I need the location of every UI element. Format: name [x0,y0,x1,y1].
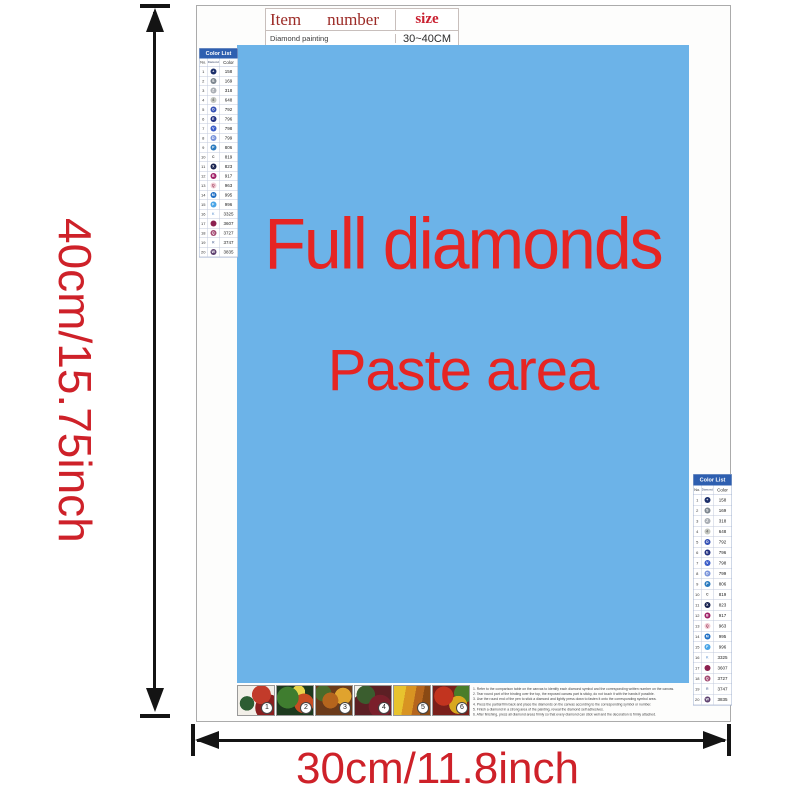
row-number: 18 [200,229,208,238]
row-number: 15 [200,200,208,209]
diamond-symbol-icon: X [210,164,216,170]
paste-area: Full diamonds Paste area [237,45,689,683]
color-list-row: 5 O 792 [694,537,732,548]
diamond-symbol-icon: 4 [704,529,710,535]
diamond-symbol-icon: O [704,539,710,545]
diamond-symbol-cell: Z [208,86,220,95]
dmc-code: 3325 [220,212,238,217]
arrowhead-down-icon [146,688,164,712]
color-list-row: 15 F 996 [200,200,238,210]
diamond-symbol-icon: K [704,655,710,661]
color-list-left: Color List No. Diamond Color 1 + 158 [199,48,238,258]
row-number: 1 [694,495,702,505]
color-list-rows: 1 + 158 2 S 169 [694,495,732,705]
color-list-right: Color List No. Diamond Color 1 + 158 [693,474,732,706]
row-number: 4 [694,527,702,537]
color-list-row: 5 O 792 [200,105,238,115]
diamond-symbol-icon: D [210,135,216,141]
col-color: Color [714,486,732,495]
diamond-symbol-cell: D [208,134,220,143]
color-list-row: 13 Q 963 [694,621,732,632]
arrow-line [197,739,725,742]
diamond-symbol-cell: 4 [702,527,714,537]
diamond-symbol-cell: F [702,642,714,652]
dmc-code: 3727 [714,676,732,681]
diamond-symbol-cell: B [702,611,714,621]
dmc-code: 963 [714,624,732,629]
diamond-symbol-icon: + [704,497,710,503]
diamond-symbol-icon [210,221,216,227]
diamond-symbol-icon: C [704,592,710,598]
dmc-code: 169 [714,508,732,513]
color-list-row: 6 E 796 [694,548,732,559]
color-list-row: 17 3607 [694,663,732,674]
row-number: 7 [694,558,702,568]
diamond-symbol-icon: B [210,173,216,179]
row-number: 14 [200,191,208,200]
diamond-symbol-cell [702,663,714,673]
diamond-symbol-cell: Z [702,516,714,526]
row-number: 17 [694,663,702,673]
color-list-row: 8 D 799 [694,569,732,580]
color-list-title: Color List [200,49,238,59]
dmc-code: 3727 [220,231,238,236]
diamond-symbol-cell: C [208,153,220,162]
diamond-symbol-icon: P [210,145,216,151]
dmc-code: 798 [220,126,238,131]
thumbnail-number-badge: 3 [339,702,351,714]
color-list-row: 19 R 3747 [694,684,732,695]
dmc-code: 823 [714,603,732,608]
diamond-symbol-cell: C [702,590,714,600]
row-number: 10 [694,590,702,600]
row-number: 5 [694,537,702,547]
diamond-symbol-cell: D [702,569,714,579]
color-list-row: 18 Q 3727 [200,229,238,239]
diamond-symbol-icon: V [704,560,710,566]
dmc-code: 796 [714,550,732,555]
diamond-symbol-cell: O [702,537,714,547]
color-list-row: 16 K 3325 [694,653,732,664]
diamond-symbol-cell: 4 [208,96,220,105]
row-number: 6 [694,548,702,558]
diamond-symbol-icon: R [704,686,710,692]
row-number: 2 [694,506,702,516]
diamond-symbol-cell: O [208,105,220,114]
color-list-column-headers: No. Diamond Color [694,486,732,496]
diamond-symbol-icon: O [210,107,216,113]
diamond-symbol-icon: 4 [210,97,216,103]
diamond-symbol-icon: Q [704,676,710,682]
product-name-cell: Diamond painting [266,34,396,43]
row-number: 11 [694,600,702,610]
item-table-data-row: Diamond painting 30~40CM [266,31,458,46]
color-list-row: 20 W 3835 [694,695,732,706]
row-number: 2 [200,77,208,86]
col-diamond: Diamond [702,486,714,495]
dmc-code: 806 [714,582,732,587]
instruction-line: 6. After finishing, press all diamond ar… [473,712,699,717]
color-list-row: 12 B 917 [200,172,238,182]
col-diamond: Diamond [208,59,220,67]
diamond-symbol-cell: K [702,653,714,663]
row-number: 16 [694,653,702,663]
color-list-row: 7 V 798 [200,124,238,134]
diamond-symbol-icon: D [704,571,710,577]
row-number: 1 [200,67,208,76]
thumbnail-number-badge: 1 [261,702,273,714]
item-label: Item [270,10,301,30]
diamond-symbol-cell: K [208,210,220,219]
diamond-symbol-icon: Z [210,88,216,94]
diamond-symbol-cell: E [702,548,714,558]
color-list-row: 8 D 799 [200,134,238,144]
dmc-code: 963 [220,183,238,188]
diamond-symbol-icon: S [210,78,216,84]
dmc-code: 3607 [714,666,732,671]
item-number-header-cell: Item number [266,10,396,30]
dmc-code: 3325 [714,655,732,660]
color-list-row: 1 + 158 [200,67,238,77]
diamond-symbol-cell: F [208,200,220,209]
col-color: Color [220,59,238,67]
diamond-symbol-icon: M [210,192,216,198]
diamond-symbol-cell: P [702,579,714,589]
thumbnail-number-badge: 6 [456,702,468,714]
diamond-symbol-icon: B [704,613,710,619]
color-list-column-headers: No. Diamond Color [200,59,238,68]
diamond-symbol-icon: F [210,202,216,208]
color-list-rows: 1 + 158 2 S 169 [200,67,238,257]
diamond-symbol-cell: X [702,600,714,610]
color-list-row: 2 S 169 [694,506,732,517]
color-list-row: 18 Q 3727 [694,674,732,685]
dmc-code: 996 [220,202,238,207]
diamond-symbol-icon: X [704,602,710,608]
thumbnail: 5 [393,685,431,716]
diamond-symbol-cell: M [208,191,220,200]
col-no: No. [200,59,208,67]
dmc-code: 648 [220,98,238,103]
diamond-symbol-cell: E [208,115,220,124]
row-number: 8 [694,569,702,579]
dmc-code: 995 [714,634,732,639]
row-number: 20 [200,248,208,257]
color-list-row: 11 X 823 [694,600,732,611]
diamond-symbol-cell: W [702,695,714,705]
dmc-code: 798 [714,561,732,566]
diamond-symbol-cell: Q [208,181,220,190]
dmc-code: 3747 [714,687,732,692]
color-list-row: 2 S 169 [200,77,238,87]
diamond-symbol-cell: P [208,143,220,152]
dmc-code: 996 [714,645,732,650]
row-number: 3 [200,86,208,95]
dmc-code: 318 [714,519,732,524]
diamond-symbol-icon: Q [210,230,216,236]
diamond-symbol-cell: S [208,77,220,86]
color-list-row: 3 Z 318 [200,86,238,96]
dmc-code: 3747 [220,240,238,245]
diamond-symbol-icon: Q [704,623,710,629]
dmc-code: 3835 [714,697,732,702]
paste-area-title-line1: Full diamonds [237,203,689,286]
diamond-symbol-icon: W [704,697,710,703]
size-header-cell: size [396,11,458,28]
dmc-code: 823 [220,164,238,169]
thumbnail-number-badge: 5 [417,702,429,714]
diamond-symbol-cell: R [208,238,220,247]
row-number: 18 [694,674,702,684]
diamond-symbol-icon: S [704,508,710,514]
dmc-code: 917 [220,174,238,179]
diamond-symbol-icon: C [210,154,216,160]
color-list-row: 14 M 995 [200,191,238,201]
row-number: 5 [200,105,208,114]
diamond-symbol-cell: W [208,248,220,257]
diamond-symbol-icon: F [704,644,710,650]
diamond-symbol-icon: Z [704,518,710,524]
diamond-symbol-cell: M [702,632,714,642]
arrow-cap-bottom [140,714,170,718]
color-list-row: 16 K 3325 [200,210,238,220]
diamond-symbol-icon: M [704,634,710,640]
color-list-row: 12 B 917 [694,611,732,622]
diamond-symbol-icon [704,665,710,671]
example-thumbnails: 1 2 3 4 5 6 [237,685,470,716]
thumbnail: 3 [315,685,353,716]
row-number: 9 [200,143,208,152]
dmc-code: 796 [220,117,238,122]
instructions: 1. Refer to the comparison table on the … [473,687,699,718]
color-list-row: 4 4 648 [200,96,238,106]
dmc-code: 3835 [220,250,238,255]
thumbnail: 1 [237,685,275,716]
dmc-code: 792 [220,107,238,112]
diamond-symbol-cell: S [702,506,714,516]
row-number: 14 [694,632,702,642]
row-number: 12 [694,611,702,621]
row-number: 13 [694,621,702,631]
diamond-symbol-icon: W [210,249,216,255]
diamond-symbol-cell: R [702,684,714,694]
dmc-code: 169 [220,79,238,84]
thumbnail: 4 [354,685,392,716]
color-list-row: 7 V 798 [694,558,732,569]
dmc-code: 799 [220,136,238,141]
diamond-symbol-icon: E [704,550,710,556]
color-list-row: 10 C 819 [200,153,238,163]
row-number: 10 [200,153,208,162]
row-number: 13 [200,181,208,190]
dmc-code: 792 [714,540,732,545]
color-list-row: 3 Z 318 [694,516,732,527]
color-list-row: 4 4 648 [694,527,732,538]
diamond-symbol-cell: + [702,495,714,505]
row-number: 8 [200,134,208,143]
thumbnail-number-badge: 4 [378,702,390,714]
item-info-table: Item number size Diamond painting 30~40C… [265,8,459,47]
item-table-header-row: Item number size [266,9,458,31]
diamond-symbol-cell: V [208,124,220,133]
diamond-symbol-cell: X [208,162,220,171]
width-dimension-label: 30cm/11.8inch [165,744,710,794]
product-diagram: 40cm/15.75inch Item number size Diamond … [0,0,800,800]
diamond-symbol-cell [208,219,220,228]
color-list-row: 10 C 819 [694,590,732,601]
row-number: 15 [694,642,702,652]
height-dimension-label: 40cm/15.75inch [44,200,106,560]
dmc-code: 806 [220,145,238,150]
dmc-code: 158 [220,69,238,74]
diamond-symbol-cell: B [208,172,220,181]
color-list-row: 15 F 996 [694,642,732,653]
diamond-symbol-cell: Q [208,229,220,238]
color-list-row: 20 W 3835 [200,248,238,258]
diamond-symbol-icon: R [210,240,216,246]
arrow-line [153,12,156,704]
row-number: 6 [200,115,208,124]
row-number: 11 [200,162,208,171]
row-number: 7 [200,124,208,133]
color-list-row: 1 + 158 [694,495,732,506]
number-label: number [327,10,379,30]
thumbnail: 6 [432,685,470,716]
color-list-row: 11 X 823 [200,162,238,172]
color-list-row: 9 P 806 [694,579,732,590]
canvas-page: Item number size Diamond painting 30~40C… [196,5,731,722]
row-number: 3 [694,516,702,526]
dmc-code: 799 [714,571,732,576]
color-list-row: 17 3607 [200,219,238,229]
diamond-symbol-icon: K [210,211,216,217]
color-list-row: 14 M 995 [694,632,732,643]
diamond-symbol-cell: V [702,558,714,568]
color-list-row: 9 P 806 [200,143,238,153]
color-list-row: 6 E 796 [200,115,238,125]
dmc-code: 318 [220,88,238,93]
dmc-code: 819 [714,592,732,597]
col-no: No. [694,486,702,495]
color-list-row: 19 R 3747 [200,238,238,248]
diamond-symbol-cell: Q [702,674,714,684]
row-number: 4 [200,96,208,105]
paste-area-title-line2: Paste area [237,337,689,404]
thumbnail-number-badge: 2 [300,702,312,714]
row-number: 9 [694,579,702,589]
dmc-code: 995 [220,193,238,198]
arrow-cap-right [727,724,731,756]
diamond-symbol-icon: P [704,581,710,587]
height-dimension-arrow [139,4,171,720]
diamond-symbol-icon: V [210,126,216,132]
dmc-code: 819 [220,155,238,160]
row-number: 19 [200,238,208,247]
diamond-symbol-cell: + [208,67,220,76]
row-number: 17 [200,219,208,228]
row-number: 12 [200,172,208,181]
dmc-code: 917 [714,613,732,618]
dmc-code: 648 [714,529,732,534]
diamond-symbol-icon: + [210,69,216,75]
thumbnail: 2 [276,685,314,716]
diamond-symbol-icon: E [210,116,216,122]
dmc-code: 158 [714,498,732,503]
dmc-code: 3607 [220,221,238,226]
row-number: 16 [200,210,208,219]
size-value-cell: 30~40CM [396,33,458,45]
diamond-symbol-cell: Q [702,621,714,631]
color-list-row: 13 Q 963 [200,181,238,191]
diamond-symbol-icon: Q [210,183,216,189]
color-list-title: Color List [694,475,732,486]
